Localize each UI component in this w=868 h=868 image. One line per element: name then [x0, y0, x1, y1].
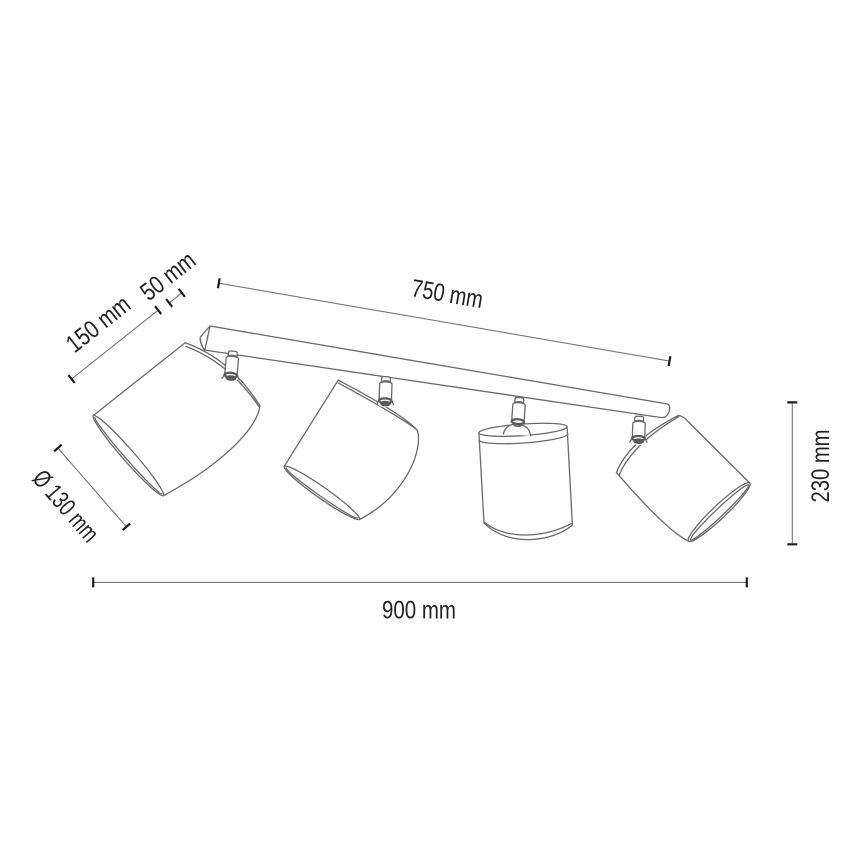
svg-text:230 mm: 230 mm: [807, 430, 835, 503]
svg-text:900 mm: 900 mm: [382, 597, 456, 625]
